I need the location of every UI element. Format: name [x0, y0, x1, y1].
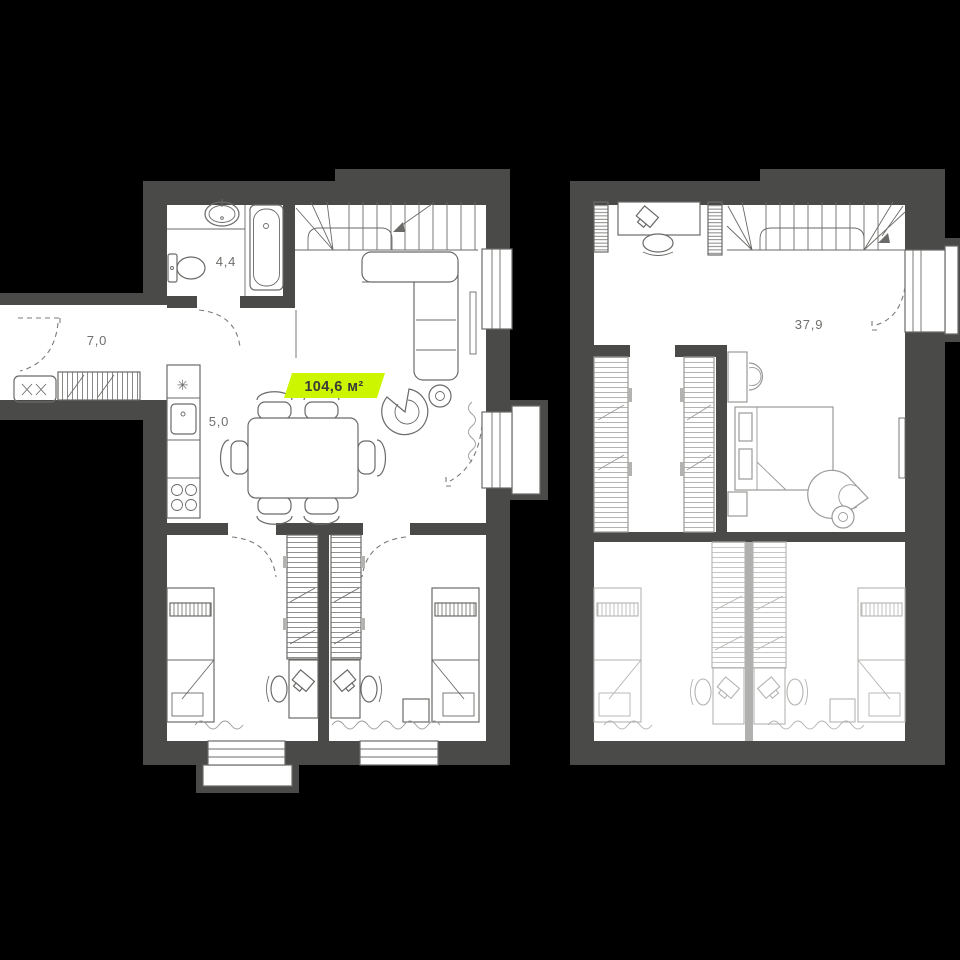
area-badge: 104,6 м²	[284, 373, 385, 398]
floor2-bed-left	[594, 588, 641, 722]
floor2-bed-right	[858, 588, 905, 722]
floor1-window-bottom-right	[360, 741, 438, 765]
hall-area-label: 37,9	[795, 317, 823, 332]
area-badge-text: 104,6 м²	[304, 379, 363, 395]
floor1-balcony-right	[510, 400, 548, 500]
floor-plan-2: 37,9	[570, 169, 960, 765]
light-partition	[745, 542, 753, 741]
floor1-bed-right	[432, 588, 479, 722]
floor-lamp-table	[429, 385, 451, 407]
freezer-snowflake-icon: ✳	[177, 377, 190, 393]
floor-plan-1: 4,4 7,0	[0, 169, 548, 793]
floor-plan-canvas: 4,4 7,0	[0, 0, 960, 960]
floor1-bed-left	[167, 588, 214, 722]
floor1-window-bottom-left	[208, 741, 285, 765]
hallway-area-label: 7,0	[87, 333, 107, 348]
desk	[618, 202, 700, 235]
nightstand	[403, 699, 429, 722]
dining-table	[248, 418, 358, 498]
kitchen-area-label: 5,0	[209, 414, 229, 429]
bathroom-area-label: 4,4	[216, 254, 236, 269]
stool	[728, 492, 747, 516]
hallway-wardrobe	[58, 372, 140, 400]
radiator	[708, 202, 722, 255]
desk-chair	[643, 234, 673, 252]
nightstand	[830, 699, 855, 722]
floor1-window-right-upper	[482, 249, 512, 329]
side-table	[832, 506, 854, 528]
radiator	[594, 202, 608, 252]
floor1-balcony-bottom	[196, 765, 299, 793]
floor-plans-svg: 4,4 7,0	[0, 0, 960, 960]
